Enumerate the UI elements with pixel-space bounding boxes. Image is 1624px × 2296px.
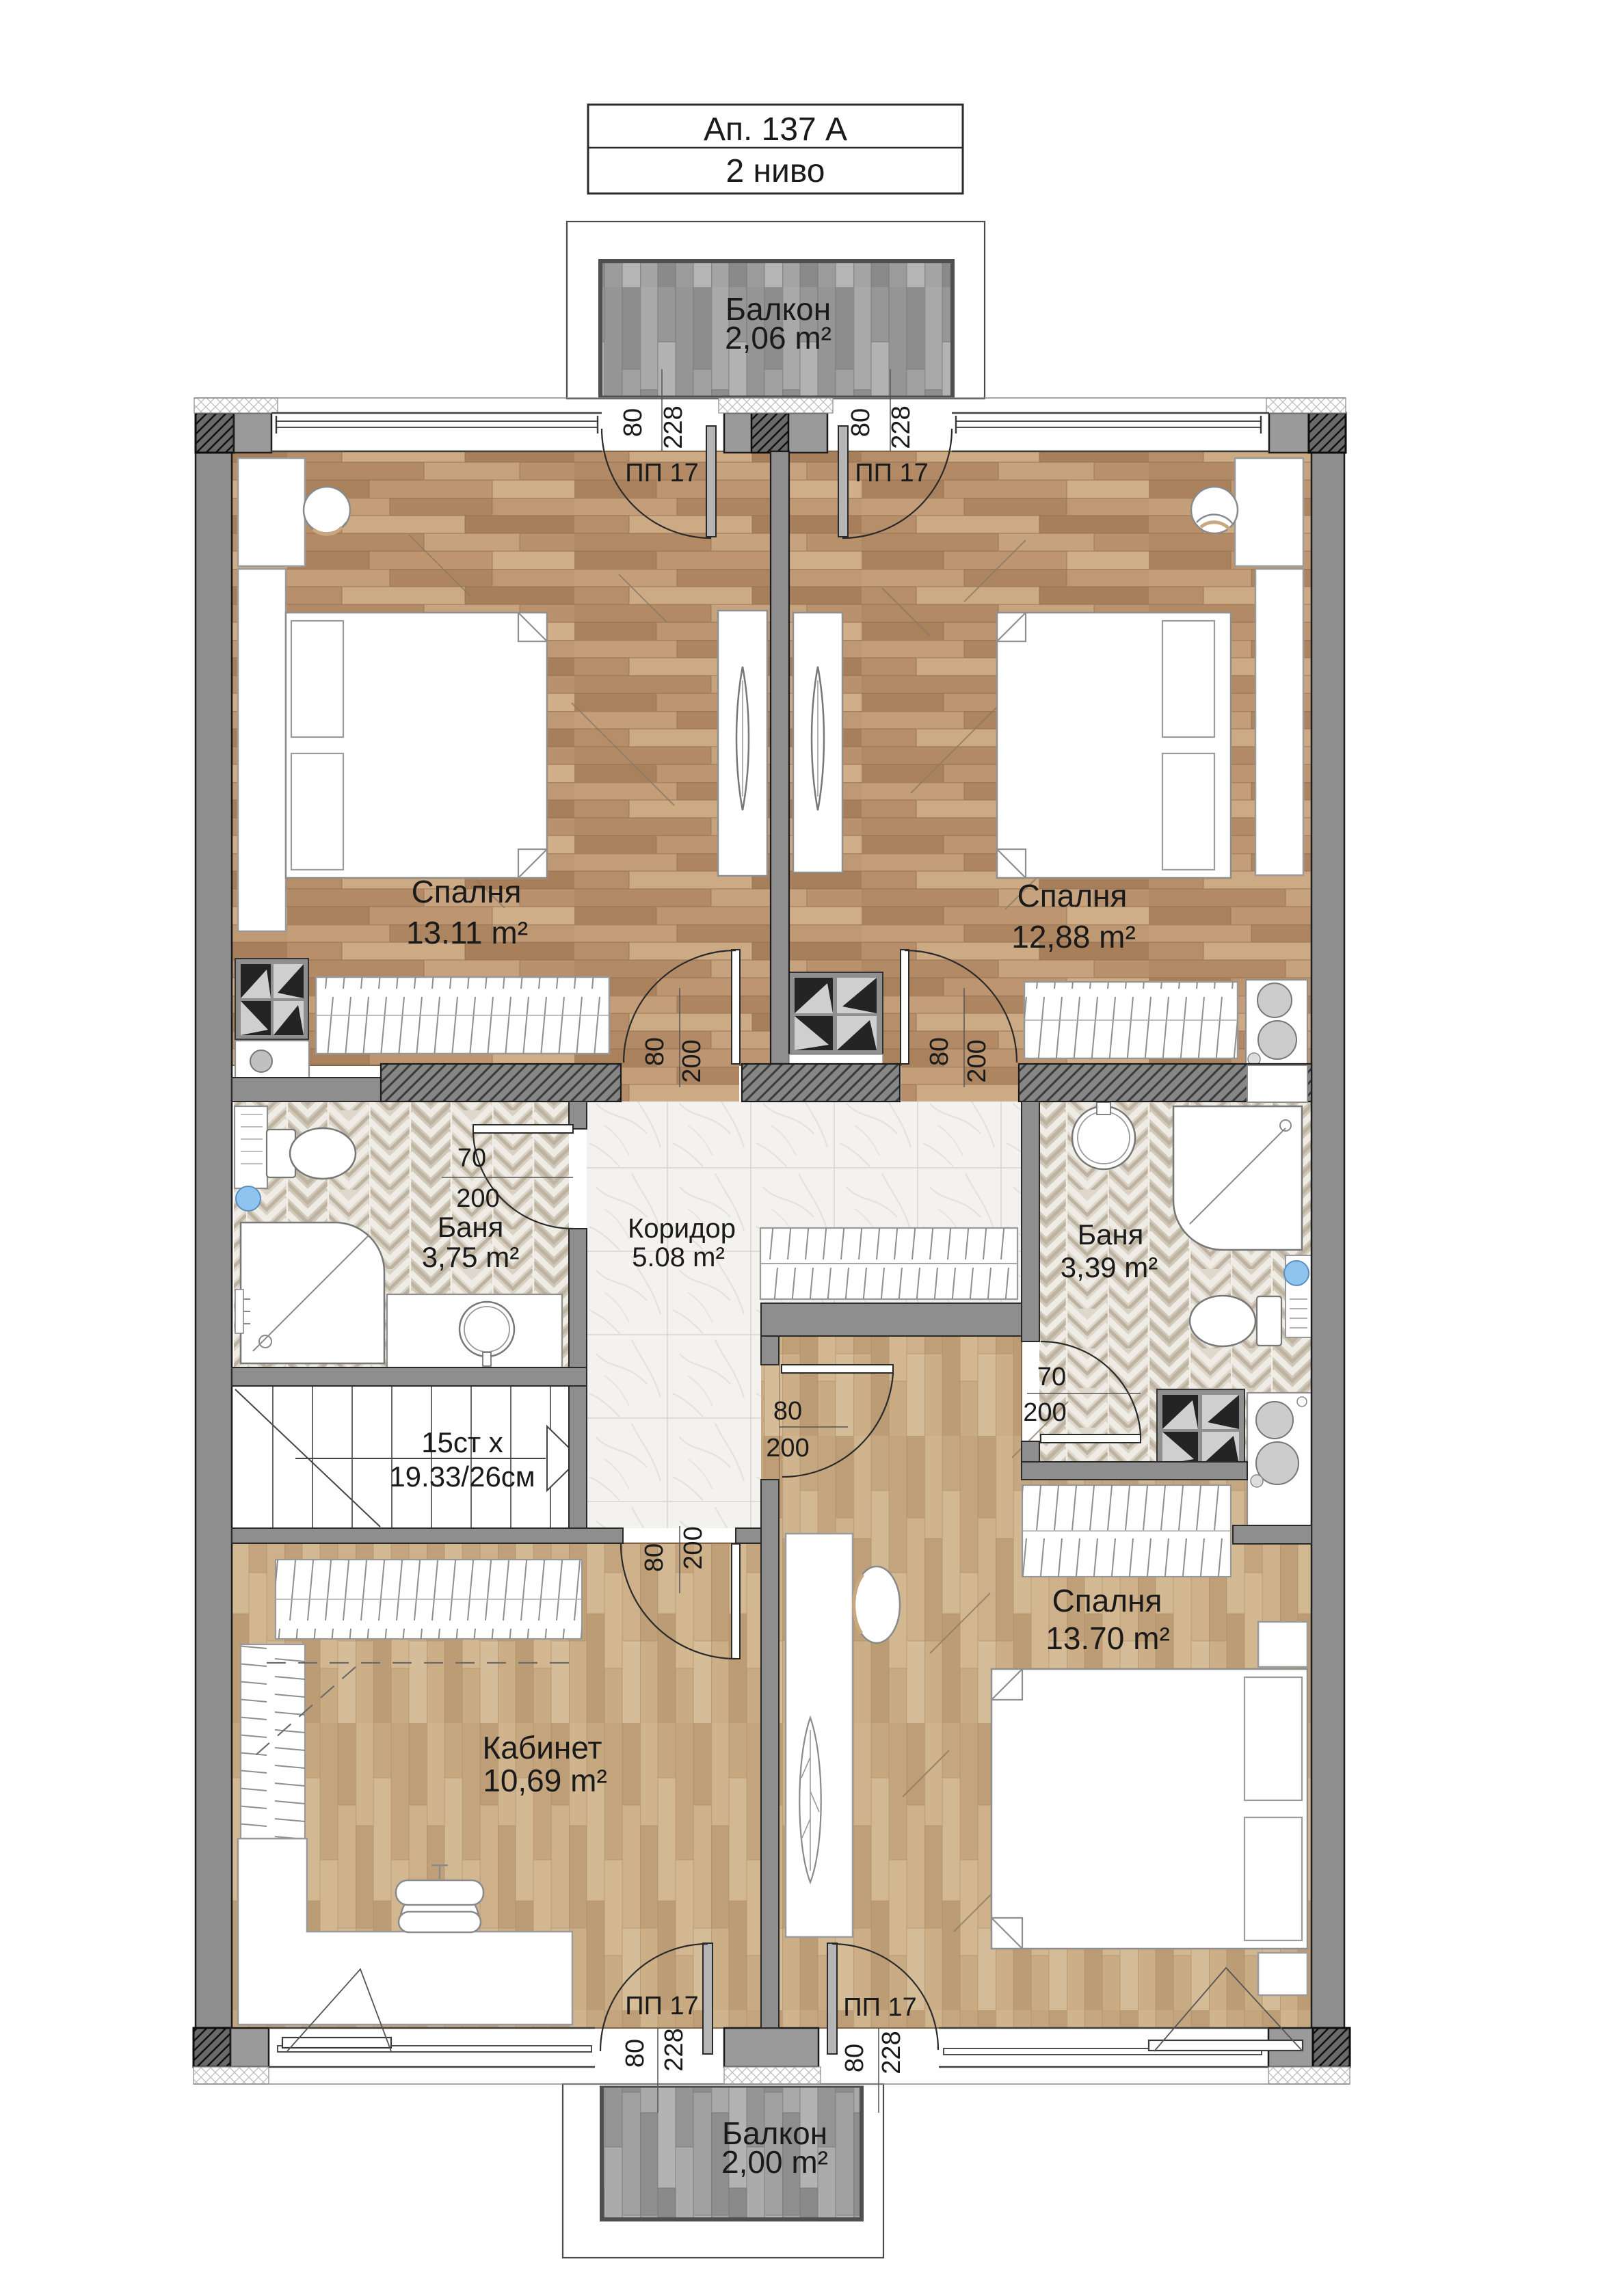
svg-text:ПП 17: ПП 17 (855, 459, 928, 488)
svg-text:200: 200 (766, 1434, 809, 1463)
svg-text:12,88 m²: 12,88 m² (1011, 919, 1136, 955)
svg-text:3,39 m²: 3,39 m² (1061, 1251, 1158, 1283)
svg-text:2,00 m²: 2,00 m² (721, 2144, 828, 2180)
svg-text:80: 80 (840, 2044, 869, 2072)
svg-text:80: 80 (641, 1037, 669, 1066)
svg-text:3,75 m²: 3,75 m² (422, 1241, 519, 1273)
svg-text:Ап. 137 А: Ап. 137 А (704, 111, 847, 148)
svg-text:10,69 m²: 10,69 m² (483, 1763, 607, 1798)
svg-text:228: 228 (887, 405, 916, 449)
svg-text:200: 200 (679, 1526, 708, 1569)
svg-text:80: 80 (621, 2039, 650, 2068)
svg-text:70: 70 (1037, 1363, 1066, 1391)
svg-text:80: 80 (925, 1037, 954, 1066)
svg-text:13.11 m²: 13.11 m² (406, 915, 528, 950)
svg-text:Коридор: Коридор (628, 1214, 736, 1244)
svg-text:200: 200 (678, 1039, 706, 1082)
svg-text:200: 200 (963, 1039, 991, 1082)
svg-text:80: 80 (847, 408, 875, 437)
svg-text:80: 80 (619, 408, 648, 437)
svg-text:Спалня: Спалня (1052, 1583, 1162, 1618)
svg-text:80: 80 (773, 1397, 802, 1426)
svg-text:15ст х: 15ст х (421, 1426, 503, 1458)
svg-text:Баня: Баня (1078, 1218, 1144, 1251)
svg-text:228: 228 (659, 405, 688, 449)
svg-text:2 ниво: 2 ниво (726, 153, 825, 189)
svg-text:2,06 m²: 2,06 m² (725, 320, 831, 356)
svg-text:80: 80 (640, 1543, 669, 1572)
svg-text:5.08 m²: 5.08 m² (632, 1242, 725, 1272)
svg-text:228: 228 (660, 2028, 689, 2071)
svg-text:Баня: Баня (438, 1211, 504, 1243)
svg-text:228: 228 (877, 2031, 906, 2074)
svg-text:Кабинет: Кабинет (483, 1730, 602, 1765)
svg-text:ПП 17: ПП 17 (843, 1993, 916, 2022)
svg-text:13.70 m²: 13.70 m² (1046, 1620, 1170, 1656)
svg-text:ПП 17: ПП 17 (625, 1992, 698, 2020)
svg-text:200: 200 (1023, 1398, 1066, 1427)
svg-text:70: 70 (457, 1144, 486, 1173)
svg-text:19.33/26см: 19.33/26см (389, 1460, 535, 1493)
svg-text:Спалня: Спалня (1017, 878, 1128, 913)
svg-text:Спалня: Спалня (412, 874, 522, 909)
svg-text:ПП 17: ПП 17 (625, 459, 698, 488)
svg-text:200: 200 (456, 1184, 499, 1213)
